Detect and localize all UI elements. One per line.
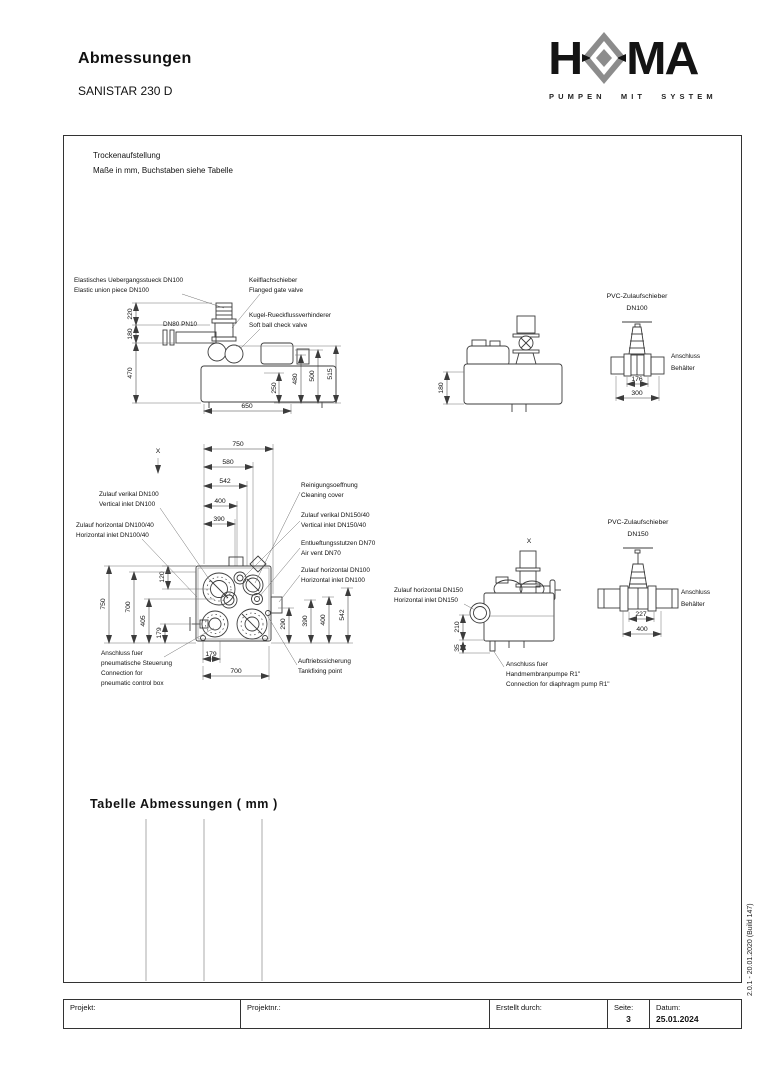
valve-dn150: PVC-Zulaufschieber DN150 227 400 bbox=[598, 519, 710, 637]
side-view-2: X 210 35 Zulauf horizontal D bbox=[394, 538, 610, 688]
label-clean-de: Reinigungsoeffnung bbox=[301, 482, 358, 489]
label-vert150-de: Zulauf verikal DN150/40 bbox=[301, 512, 370, 519]
footer-seite-value: 3 bbox=[614, 1014, 649, 1024]
label-vert100-en: Vertical inlet DN100 bbox=[99, 501, 156, 508]
side2-x-marker: X bbox=[527, 538, 532, 545]
plan-x-marker: X bbox=[156, 448, 161, 455]
label-gate-en: Flanged gate valve bbox=[249, 287, 303, 294]
valve-dn150-size: DN150 bbox=[627, 531, 648, 538]
label-clean-en: Cleaning cover bbox=[301, 492, 345, 499]
dim-180: 180 bbox=[127, 328, 134, 340]
dim-480: 480 bbox=[292, 373, 299, 385]
footer-erstellt-label: Erstellt durch: bbox=[496, 1003, 542, 1012]
dim-400-valve: 400 bbox=[636, 626, 648, 633]
dim-179-bottom: 179 bbox=[205, 651, 217, 658]
footer-title-block: Projekt: Projektnr.: Erstellt durch: Sei… bbox=[63, 999, 742, 1029]
footer-datum-cell: Datum: 25.01.2024 bbox=[650, 1000, 741, 1028]
dim-180-side: 180 bbox=[438, 382, 445, 394]
logo-diamond-icon bbox=[581, 32, 627, 84]
footer-datum-label: Datum: bbox=[656, 1003, 741, 1012]
label-vent-de: Entlueftungsstutzen DN70 bbox=[301, 540, 376, 547]
footer-seite-label: Seite: bbox=[614, 1003, 649, 1012]
label-check-de: Kugel-Rueckflussverhinderer bbox=[249, 312, 332, 319]
footer-projekt-cell: Projekt: bbox=[64, 1000, 241, 1028]
dim-750-left: 750 bbox=[100, 598, 107, 610]
dim-35: 35 bbox=[454, 644, 461, 652]
label-fix-de: Auftriebssicherung bbox=[298, 658, 351, 665]
homa-logo: H MA PUMPEN MIT SYSTEM bbox=[549, 32, 719, 101]
valve-dn100-conn1: Anschluss bbox=[671, 353, 700, 360]
logo-letter-h: H bbox=[548, 35, 581, 81]
dim-515: 515 bbox=[327, 368, 334, 380]
label-pneu-1: Anschluss fuer bbox=[101, 650, 144, 657]
footer-projekt-label: Projekt: bbox=[70, 1003, 95, 1012]
footer-erstellt-cell: Erstellt durch: bbox=[490, 1000, 608, 1028]
label-pneu-2: pneumatische Steuerung bbox=[101, 660, 173, 667]
front-view: Elastisches Uebergangsstueck DN100 Elast… bbox=[74, 277, 341, 414]
dim-300: 300 bbox=[631, 390, 643, 397]
dim-227: 227 bbox=[635, 611, 647, 618]
dim-290: 290 bbox=[280, 618, 287, 630]
homa-logo-letters: H MA bbox=[549, 32, 719, 84]
label-vent-en: Air vent DN70 bbox=[301, 550, 341, 557]
plan-view: X 750 580 542 400 390 bbox=[76, 441, 376, 687]
page-title: Abmessungen bbox=[78, 50, 192, 68]
label-horiz10040-en: Horizontal inlet DN100/40 bbox=[76, 532, 149, 539]
label-horiz100-de: Zulauf horizontal DN100 bbox=[301, 567, 370, 574]
label-pump-1: Anschluss fuer bbox=[506, 661, 549, 668]
label-dn80: DN80 PN10 bbox=[163, 321, 198, 328]
dim-470: 470 bbox=[127, 367, 134, 379]
label-vert100-de: Zulauf verikal DN100 bbox=[99, 491, 159, 498]
side-view: 180 bbox=[438, 316, 562, 412]
label-pump-2: Handmembranpumpe R1" bbox=[506, 671, 580, 678]
dim-405: 405 bbox=[140, 615, 147, 627]
dim-400-top: 400 bbox=[214, 498, 226, 505]
dim-250: 250 bbox=[271, 382, 278, 394]
dim-580: 580 bbox=[222, 459, 234, 466]
valve-dn100-title: PVC-Zulaufschieber bbox=[607, 293, 669, 300]
label-horiz150-en: Horizontal inlet DN150 bbox=[394, 597, 458, 604]
page-subtitle: SANISTAR 230 D bbox=[78, 84, 172, 98]
label-fix-en: Tankfixing point bbox=[298, 668, 342, 675]
label-pneu-4: pneumatic control box bbox=[101, 680, 164, 687]
valve-dn100-size: DN100 bbox=[626, 305, 647, 312]
dim-210: 210 bbox=[454, 621, 461, 633]
dim-542-top: 542 bbox=[219, 478, 231, 485]
dim-176: 176 bbox=[631, 376, 643, 383]
valve-dn100-conn2: Behälter bbox=[671, 365, 696, 372]
valve-dn150-title: PVC-Zulaufschieber bbox=[608, 519, 670, 526]
footer-projektnr-label: Projektnr.: bbox=[247, 1003, 281, 1012]
valve-dn100: PVC-Zulaufschieber DN100 176 300 Anschlu… bbox=[607, 293, 701, 401]
dim-390-top: 390 bbox=[213, 516, 225, 523]
dim-750-top: 750 bbox=[232, 441, 244, 448]
technical-drawing: Elastisches Uebergangsstueck DN100 Elast… bbox=[64, 136, 741, 982]
label-horiz10040-de: Zulauf horizontal DN100/40 bbox=[76, 522, 154, 529]
label-union-en: Elastic union piece DN100 bbox=[74, 287, 149, 294]
dim-120: 120 bbox=[159, 571, 166, 583]
dim-700-left: 700 bbox=[125, 601, 132, 613]
dim-179-left: 179 bbox=[156, 627, 163, 639]
dim-542-right: 542 bbox=[339, 609, 346, 621]
dim-390-right: 390 bbox=[302, 615, 309, 627]
label-check-en: Soft ball check valve bbox=[249, 322, 308, 329]
label-gate-de: Keilflachschieber bbox=[249, 277, 298, 284]
label-vert150-en: Vertical inlet DN150/40 bbox=[301, 522, 366, 529]
dim-500: 500 bbox=[309, 370, 316, 382]
label-pump-3: Connection for diaphragm pump R1" bbox=[506, 681, 610, 688]
dim-700-bottom: 700 bbox=[230, 668, 242, 675]
label-horiz100-en: Horizontal inlet DN100 bbox=[301, 577, 365, 584]
footer-projektnr-cell: Projektnr.: bbox=[241, 1000, 490, 1028]
valve-dn150-conn1: Anschluss bbox=[681, 589, 710, 596]
dim-220: 220 bbox=[127, 308, 134, 320]
valve-dn150-conn2: Behälter bbox=[681, 601, 706, 608]
logo-letter-ma: MA bbox=[627, 35, 698, 81]
drawing-frame: Trockenaufstellung Maße in mm, Buchstabe… bbox=[63, 135, 742, 983]
label-union-de: Elastisches Uebergangsstueck DN100 bbox=[74, 277, 183, 284]
label-horiz150-de: Zulauf horizontal DN150 bbox=[394, 587, 463, 594]
footer-seite-cell: Seite: 3 bbox=[608, 1000, 650, 1028]
label-pneu-3: Connection for bbox=[101, 670, 143, 677]
footer-datum-value: 25.01.2024 bbox=[656, 1014, 741, 1024]
version-text: 2.0.1 - 20.01.2020 (Build 147) bbox=[747, 903, 754, 996]
logo-tagline: PUMPEN MIT SYSTEM bbox=[549, 92, 719, 101]
dimension-table-rules bbox=[146, 819, 262, 981]
dim-400-right: 400 bbox=[320, 614, 327, 626]
dim-650: 650 bbox=[241, 403, 253, 410]
